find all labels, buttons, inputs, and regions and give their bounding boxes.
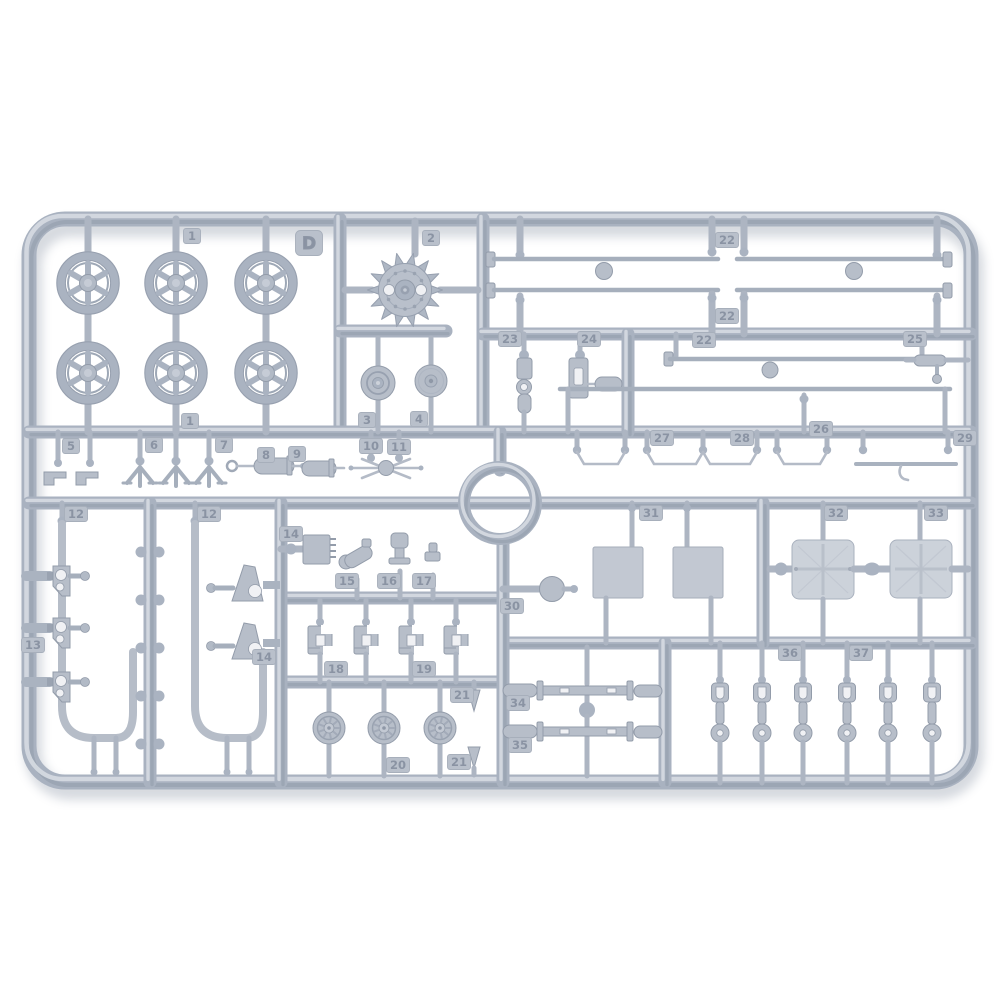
part-number-tag: 10: [360, 439, 383, 454]
part-number-tag: 29: [954, 431, 977, 446]
svg-text:27: 27: [654, 431, 670, 445]
svg-text:6: 6: [150, 438, 158, 452]
part-number-tag: 16: [378, 574, 401, 589]
svg-text:35: 35: [512, 738, 528, 752]
part-number-tag: 14: [253, 650, 276, 665]
part-number-tag: 2: [423, 231, 440, 246]
svg-text:2: 2: [427, 231, 435, 245]
part-number-tag: 1: [184, 229, 201, 244]
hatch-parts-32-33: [770, 503, 968, 643]
svg-text:9: 9: [293, 447, 301, 461]
sprue-letter-tag: D: [296, 231, 323, 256]
part-number-tag: 33: [925, 506, 948, 521]
svg-text:29: 29: [957, 431, 973, 445]
part-number-tag: 36: [779, 646, 802, 661]
svg-text:26: 26: [813, 422, 829, 436]
part-number-tag: 22: [716, 309, 739, 324]
svg-text:5: 5: [67, 439, 75, 453]
part-number-tag: 32: [825, 506, 848, 521]
part-number-tag: 19: [413, 662, 436, 677]
part-number-tag: 4: [411, 412, 428, 427]
svg-text:1: 1: [186, 414, 194, 428]
svg-text:24: 24: [581, 332, 597, 346]
part-number-tag: 11: [388, 440, 411, 455]
part-number-tag: 8: [258, 448, 275, 463]
svg-text:20: 20: [390, 758, 406, 772]
svg-text:34: 34: [510, 696, 526, 710]
part-number-tag: 34: [507, 696, 530, 711]
part-number-tag: 6: [146, 438, 163, 453]
part-number-tag: 21: [451, 688, 474, 703]
svg-text:12: 12: [201, 507, 217, 521]
svg-text:15: 15: [339, 574, 355, 588]
svg-text:33: 33: [928, 506, 944, 520]
part-number-tag: 3: [359, 413, 376, 428]
part-number-tag: 1: [182, 414, 199, 429]
part-number-tag: 5: [63, 439, 80, 454]
link-parts-36-37: [711, 643, 941, 783]
svg-text:3: 3: [363, 413, 371, 427]
svg-text:4: 4: [415, 412, 423, 426]
part-25: [906, 355, 968, 384]
svg-text:8: 8: [262, 448, 270, 462]
brackets-part14: [207, 565, 281, 659]
part-number-tag: 13: [22, 638, 45, 653]
part-number-tag: 24: [578, 332, 601, 347]
part-30: [503, 577, 578, 602]
skirt-parts-12: [58, 503, 264, 776]
strap-parts-34-35: [503, 647, 662, 776]
svg-text:22: 22: [696, 333, 712, 347]
svg-text:1: 1: [188, 229, 196, 243]
sprue-photo: Injection-molded light grey plastic mode…: [0, 0, 1000, 1000]
part-number-tag: 28: [731, 431, 754, 446]
part-number-tag: 27: [651, 431, 674, 446]
svg-text:28: 28: [734, 431, 750, 445]
plate-parts-31: [593, 503, 723, 643]
svg-text:21: 21: [451, 755, 467, 769]
svg-text:10: 10: [363, 439, 379, 453]
part-number-tag: 30: [501, 599, 524, 614]
svg-text:22: 22: [719, 233, 735, 247]
part-number-tag: 31: [640, 506, 663, 521]
part-number-tag: 35: [509, 738, 532, 753]
part-number-tag: 23: [499, 332, 522, 347]
svg-text:13: 13: [25, 638, 41, 652]
part-number-tag: 17: [413, 574, 436, 589]
road-wheels-part1: [57, 219, 297, 432]
part-number-tag: 9: [289, 447, 306, 462]
part-number-tag: 22: [716, 233, 739, 248]
svg-text:14: 14: [283, 527, 299, 541]
part-number-tag: 25: [904, 332, 927, 347]
part-number-tag: 37: [850, 646, 873, 661]
part-number-tag: 12: [198, 507, 221, 522]
hub-caps-part20: [313, 682, 456, 776]
svg-text:36: 36: [782, 646, 798, 660]
part-number-tag: 26: [810, 422, 833, 437]
svg-text:12: 12: [68, 507, 84, 521]
part-number-tag: 22: [693, 333, 716, 348]
wire-parts-27-29: [573, 432, 956, 480]
svg-text:14: 14: [256, 650, 272, 664]
svg-text:25: 25: [907, 332, 923, 346]
part-number-tag: 14: [280, 527, 303, 542]
svg-text:30: 30: [504, 599, 520, 613]
part-number-tag: 21: [448, 755, 471, 770]
part-number-tag: 18: [325, 662, 348, 677]
part-number-tag: 12: [65, 507, 88, 522]
svg-text:17: 17: [416, 574, 432, 588]
svg-text:19: 19: [416, 662, 432, 676]
svg-text:11: 11: [391, 440, 407, 454]
svg-text:18: 18: [328, 662, 344, 676]
svg-text:31: 31: [643, 506, 659, 520]
svg-text:22: 22: [719, 309, 735, 323]
part-number-tag: 7: [216, 438, 233, 453]
part-number-tag: 20: [387, 758, 410, 773]
svg-text:21: 21: [454, 688, 470, 702]
svg-text:7: 7: [220, 438, 228, 452]
svg-text:37: 37: [853, 646, 869, 660]
svg-text:32: 32: [828, 506, 844, 520]
part-number-tag: 15: [336, 574, 359, 589]
svg-text:23: 23: [502, 332, 518, 346]
svg-text:16: 16: [381, 574, 397, 588]
svg-text:D: D: [302, 234, 316, 254]
